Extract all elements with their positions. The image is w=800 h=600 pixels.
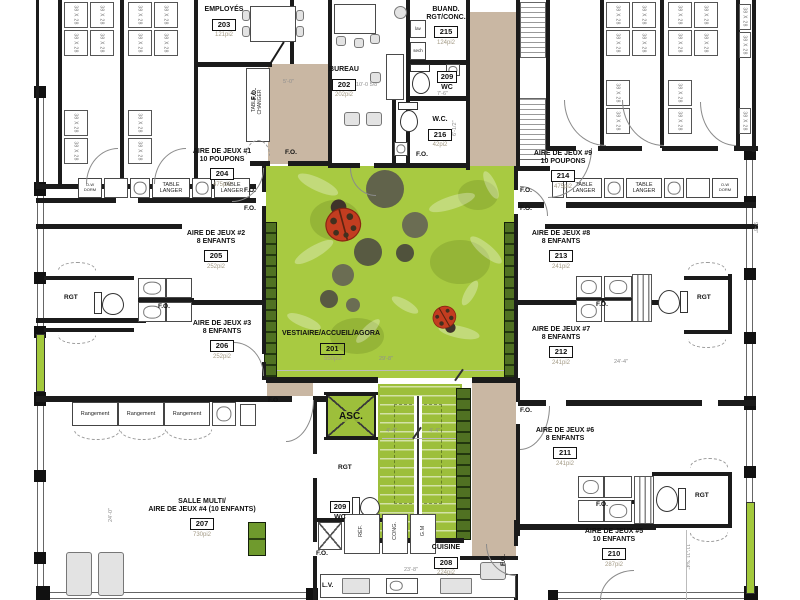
pebble-decoration (354, 238, 382, 266)
room-name: AIRE DE JEUX #8 8 ENFANTS (519, 230, 603, 245)
seat (366, 112, 382, 126)
dimension-text: 9'-8" (752, 222, 758, 233)
room-number: 212 (519, 341, 603, 359)
cabinet (240, 404, 256, 426)
sink (212, 402, 236, 426)
crib-size-label: 38 X 28 (137, 141, 143, 160)
crib: 38 X 28 (128, 110, 152, 136)
fo-annotation: F.O. (244, 205, 256, 212)
crib: 38 X 28 (64, 2, 88, 28)
wall (58, 0, 62, 186)
folding-door (688, 332, 726, 348)
room-label-buanderie: BUAND. RGT/CONC. 215 124pi2 (418, 6, 474, 47)
dimension-text: 4'-4" (429, 428, 440, 434)
counter-appliance (440, 578, 472, 594)
counter (604, 300, 632, 322)
toilet-bowl (656, 486, 678, 512)
wall (516, 378, 520, 402)
fo-annotation: F.O. (500, 554, 507, 566)
wall (545, 224, 758, 229)
room-label-jeux2: AIRE DE JEUX #2 8 ENFANTS 205 252pi2 (174, 230, 258, 271)
counter (604, 476, 632, 498)
fo-annotation: F.O. (251, 88, 258, 100)
crib-size-label: 38 X 28 (73, 33, 79, 52)
dimension-text: 24'-0" (108, 508, 114, 522)
room-name: AIRE DE JEUX #1 10 POUPONS (180, 148, 264, 163)
crib-size-label: 38 X 28 (641, 5, 647, 24)
room-label-jeux1: AIRE DE JEUX #1 10 POUPONS 204 475pi2 (180, 148, 264, 189)
dimension-text: 6'-1/2" (452, 120, 458, 136)
storage-label: RGT (695, 492, 709, 499)
fo-annotation: F.O. (520, 187, 532, 194)
room-area: 202pi2 (316, 92, 372, 99)
room-number-box: 203 (212, 19, 237, 31)
sink-basin (396, 144, 405, 153)
sink-basin (134, 182, 147, 195)
room-area: 124pi2 (418, 40, 474, 47)
wall-pier (744, 466, 756, 478)
room-number: 203 (196, 14, 252, 32)
sink (664, 178, 684, 198)
sink-basin (581, 280, 597, 294)
wall (36, 224, 182, 229)
room-number: 209 (432, 66, 462, 84)
room-label-jeux7: AIRE DE JEUX #7 8 ENFANTS 212 241pi2 (519, 326, 603, 367)
wall (684, 330, 732, 334)
wall (752, 0, 756, 152)
window-band (558, 592, 744, 599)
stove (342, 578, 370, 594)
wall-pier (36, 586, 50, 600)
crib: 38 X 28 (64, 30, 88, 56)
exit-stairs (520, 2, 546, 58)
fo-annotation: F.O. (520, 205, 532, 212)
toilet-tank (410, 64, 430, 72)
room-name: WC (326, 514, 354, 522)
dimension-text: 11'-11 3/4" (684, 544, 690, 569)
fo-annotation: F.O. (416, 151, 428, 158)
crib: 38 X 28 (128, 138, 152, 164)
dimension-text: 29'-8" (379, 356, 393, 362)
toilet-bowl (400, 110, 418, 132)
room-number-box: 208 (434, 557, 459, 569)
crib: 38 X 28 (668, 108, 692, 134)
sink-basin (609, 280, 627, 294)
pebble-decoration (402, 212, 428, 238)
sink (394, 142, 408, 156)
room-label-wc209-bas: 209 WC (326, 496, 354, 521)
room-number-box: 212 (549, 346, 574, 358)
room-area: 252pi2 (174, 264, 258, 271)
sink (578, 476, 604, 498)
wall (36, 318, 146, 323)
dishwasher-label: L.V. (322, 582, 333, 589)
room-number: 208 (416, 552, 476, 570)
refrigerator-label: RÉF. (358, 516, 364, 546)
elevator: ASC. (326, 394, 376, 438)
wall (266, 377, 378, 383)
sink-basin (143, 282, 161, 295)
room-area: 252pi2 (180, 354, 264, 361)
chair (296, 10, 304, 21)
room-number-box: 206 (210, 340, 235, 352)
crib: 38 X 28 (154, 2, 178, 28)
crib-size-label: 38 X 28 (742, 35, 748, 54)
room-label-jeux5: AIRE DE JEUX #5 10 ENFANTS 210 287pi2 (572, 528, 656, 569)
fo-annotation: F.O. (244, 187, 256, 194)
sink-basin (668, 182, 681, 195)
room-area: 42pi2 (422, 142, 458, 149)
room-number: 206 (180, 335, 264, 353)
sink (130, 178, 150, 198)
sink-basin (216, 406, 231, 421)
crib: 38 X 28 (694, 2, 718, 28)
chair (336, 36, 346, 46)
room-name: AIRE DE JEUX #2 8 ENFANTS (174, 230, 258, 245)
wall (374, 163, 470, 168)
room-label-jeux3: AIRE DE JEUX #3 8 ENFANTS 206 252pi2 (180, 320, 264, 361)
wall (186, 300, 264, 305)
room-label-cuisine: CUISINE 208 224pi2 (416, 544, 476, 577)
green-accent-panel (746, 502, 755, 594)
crib: 38 X 28 (739, 32, 751, 58)
crib-size-label: 38 X 28 (677, 5, 683, 24)
corridor (267, 383, 313, 396)
room-number: 209 (326, 496, 354, 514)
room-name: AIRE DE JEUX #6 8 ENFANTS (523, 427, 607, 442)
room-area: 224pi2 (416, 570, 476, 577)
room-name: AIRE DE JEUX #7 8 ENFANTS (519, 326, 603, 341)
equipment-box (318, 522, 342, 550)
wall (728, 472, 732, 528)
fo-annotation: F.O. (268, 397, 280, 404)
storage-label: RGT (64, 294, 78, 301)
dimension-text: 24'-4" (614, 359, 628, 365)
crib: 38 X 28 (632, 30, 656, 56)
room-label-jeux9: AIRE DE JEUX #9 10 POUPONS 214 475pi2 (521, 150, 605, 191)
fo-annotation: F.O. (316, 550, 328, 557)
crib-size-label: 38 X 28 (137, 33, 143, 52)
room-number-box: 202 (332, 79, 357, 91)
chair (370, 34, 380, 44)
wall (662, 146, 718, 151)
crib-size-label: 38 X 28 (615, 111, 621, 130)
crib-size-label: 38 X 28 (742, 7, 748, 26)
room-area: 241pi2 (519, 264, 603, 271)
freezer-label: CONG. (392, 514, 398, 548)
room-name: VESTIAIRE/ACCUEIL/AGORA (282, 330, 398, 338)
room-number: 205 (174, 245, 258, 263)
sink-basin (390, 581, 403, 591)
pebble-decoration (396, 244, 414, 262)
crib: 38 X 28 (694, 30, 718, 56)
sink-basin (583, 480, 599, 494)
room-area: 475pi2 (521, 184, 605, 191)
wall (44, 276, 134, 280)
sink (576, 276, 602, 298)
counter-cabinet: O-W DORM (712, 178, 738, 198)
table (66, 552, 92, 596)
toilet-tank (398, 102, 418, 110)
toilet-tank (680, 291, 688, 313)
wall (566, 202, 756, 208)
room-number-box: 207 (190, 518, 215, 530)
room-number-box: 209 (437, 71, 458, 83)
wall (514, 214, 518, 380)
wall (472, 377, 518, 383)
pebble-decoration (320, 290, 338, 308)
wall-pier (744, 332, 756, 344)
crib-size-label: 38 X 28 (677, 111, 683, 130)
room-number-box: 215 (434, 26, 459, 38)
sink-basin (581, 304, 597, 318)
room-number: 201 (282, 338, 398, 356)
green-accent-panel (36, 334, 45, 392)
sink-basin (608, 182, 621, 195)
room-number-box: 204 (210, 168, 235, 180)
wall (324, 392, 378, 395)
table (98, 552, 124, 596)
room-number-box: 213 (549, 250, 574, 262)
room-number: 213 (519, 245, 603, 263)
door-arc (286, 400, 314, 442)
crib-size-label: 38 X 28 (703, 5, 709, 24)
plant (394, 6, 407, 19)
room-name: BUREAU (316, 66, 372, 74)
wall (313, 478, 317, 542)
cabinet-hatched (632, 274, 652, 322)
crib: 38 X 28 (606, 2, 630, 28)
crib-size-label: 38 X 28 (703, 33, 709, 52)
room-number-box: 201 (320, 343, 345, 355)
wall (120, 0, 124, 186)
wall (36, 0, 39, 188)
wall (514, 520, 518, 546)
crib: 38 X 28 (128, 2, 152, 28)
room-number-box: 216 (428, 129, 453, 141)
room-area: 241pi2 (523, 461, 607, 468)
wall (288, 161, 330, 166)
crib-size-label: 38 X 28 (742, 111, 748, 130)
dimension-text: 10'-0 5/8" (356, 82, 379, 88)
wall (514, 166, 518, 190)
wall-pier (34, 552, 46, 564)
door-arc (600, 570, 634, 600)
crib: 38 X 28 (632, 2, 656, 28)
crib-size-label: 38 X 28 (73, 5, 79, 24)
crib-size-label: 38 X 28 (73, 141, 79, 160)
room-label-jeux6: AIRE DE JEUX #6 8 ENFANTS 211 241pi2 (523, 427, 607, 468)
room-number-box: 210 (602, 548, 627, 560)
wall (516, 0, 520, 168)
storage-cabinet: Rangement (118, 402, 164, 426)
crib: 38 X 28 (739, 108, 751, 134)
sink (386, 578, 418, 594)
cabinet-hatched (634, 476, 654, 524)
wall (546, 0, 550, 150)
wall (36, 198, 116, 203)
room-number-box: 211 (553, 447, 577, 459)
door-leaf (269, 41, 284, 64)
wall-pier (34, 470, 46, 482)
office-table (334, 4, 376, 34)
wall (518, 300, 578, 305)
room-name: AIRE DE JEUX #9 10 POUPONS (521, 150, 605, 165)
dimension-line (382, 438, 460, 439)
room-area: 241pi2 (519, 360, 603, 367)
room-area: 121pi2 (196, 32, 252, 39)
wall-pier (744, 268, 756, 280)
door-arc (86, 148, 118, 184)
wall (566, 400, 702, 406)
fo-annotation: F.O. (285, 149, 297, 156)
room-number: 211 (523, 442, 607, 460)
room-name: SALLE MULTI/ AIRE DE JEUX #4 (10 ENFANTS… (134, 498, 270, 513)
changing-table: TABLE LANGER (626, 178, 662, 198)
room-number-box: 205 (204, 250, 229, 262)
storage-cabinet: Rangement (164, 402, 210, 426)
wall (313, 402, 317, 454)
pebble-decoration (332, 264, 354, 286)
room-label-salle-multi: SALLE MULTI/ AIRE DE JEUX #4 (10 ENFANTS… (134, 498, 270, 539)
crib-size-label: 38 X 28 (677, 33, 683, 52)
room-area: 287pi2 (572, 562, 656, 569)
toilet-bowl (102, 293, 124, 315)
storage-cabinet: Rangement (72, 402, 118, 426)
sink (604, 500, 632, 522)
office-desk (386, 54, 404, 100)
room-name: BUAND. RGT/CONC. (418, 6, 474, 21)
fo-annotation: F.O. (596, 301, 608, 308)
toilet-tank (94, 292, 102, 314)
door-arc (700, 102, 736, 146)
wall (194, 62, 272, 67)
wall (44, 328, 134, 332)
dimension-line (266, 370, 514, 371)
sink (604, 276, 632, 298)
corridor (472, 378, 516, 558)
counter (166, 278, 192, 298)
dimension-text: 7'-6" (437, 91, 448, 97)
crib-size-label: 38 X 28 (615, 83, 621, 102)
crib-size-label: 38 X 28 (163, 5, 169, 24)
room-name: AIRE DE JEUX #3 8 ENFANTS (180, 320, 264, 335)
elevator-label: ASC. (337, 411, 365, 422)
crib: 38 X 28 (668, 30, 692, 56)
crib: 38 X 28 (154, 30, 178, 56)
crib: 38 X 28 (90, 2, 114, 28)
crib-size-label: 38 X 28 (99, 5, 105, 24)
wall (652, 472, 732, 476)
crib: 38 X 28 (64, 138, 88, 164)
room-name: CUISINE (416, 544, 476, 552)
dimension-text: 23'-8" (404, 567, 418, 573)
wall (324, 437, 378, 440)
counter (686, 178, 710, 198)
dimension-text: 4'-4" (386, 428, 397, 434)
wall (652, 524, 732, 528)
sink (138, 278, 166, 298)
room-label-wc209-haut: 209 WC (432, 66, 462, 91)
room-name: EMPLOYÉS (196, 6, 252, 14)
dimension-text: 5'-0" (283, 79, 294, 85)
toilet-bowl (412, 72, 430, 94)
dimension-line (686, 530, 687, 600)
appliance-gm-label: G.M (420, 518, 426, 544)
crib: 38 X 28 (668, 2, 692, 28)
room-number-box: 209 (330, 501, 351, 513)
crib: 38 X 28 (739, 4, 751, 30)
crib-size-label: 38 X 28 (615, 33, 621, 52)
chair (354, 38, 364, 48)
fo-annotation: F.O. (520, 407, 532, 414)
storage-label: RGT (697, 294, 711, 301)
room-area: 730pi2 (134, 532, 270, 539)
wall (734, 146, 758, 151)
fo-annotation: F.O. (158, 303, 170, 310)
crib: 38 X 28 (90, 30, 114, 56)
door-arc (564, 100, 606, 146)
crib: 38 X 28 (606, 30, 630, 56)
crib: 38 X 28 (128, 30, 152, 56)
locker-strip (456, 388, 471, 540)
crib-size-label: 38 X 28 (73, 113, 79, 132)
crib-size-label: 38 X 28 (99, 33, 105, 52)
wall (313, 556, 317, 600)
room-name: AIRE DE JEUX #5 10 ENFANTS (572, 528, 656, 543)
stair-rail (417, 396, 419, 528)
corridor (470, 12, 516, 168)
seat (344, 112, 360, 126)
chair (296, 26, 304, 37)
room-label-employes: EMPLOYÉS 203 121pi2 (196, 6, 252, 39)
room-number-box: 214 (551, 170, 576, 182)
storage-label: RGT (338, 464, 352, 471)
crib-size-label: 38 X 28 (641, 33, 647, 52)
crib-size-label: 38 X 28 (137, 5, 143, 24)
changing-table-label: TABLE À CHANGER (252, 70, 263, 134)
room-label-jeux8: AIRE DE JEUX #8 8 ENFANTS 213 241pi2 (519, 230, 603, 271)
sink (604, 178, 624, 198)
crib-size-label: 38 X 28 (137, 113, 143, 132)
floor-plan: ASC. 38 X 28 38 X 28 38 X 28 38 X 28 38 … (0, 0, 800, 600)
room-number: 215 (418, 21, 474, 39)
door-arc (622, 100, 664, 146)
wall-pier (548, 590, 558, 600)
sink-basin (609, 504, 627, 518)
fo-annotation: F.O. (596, 501, 608, 508)
room-number: 207 (134, 513, 270, 531)
crib: 38 X 28 (64, 110, 88, 136)
crib: 38 X 28 (668, 80, 692, 106)
crib-size-label: 38 X 28 (163, 33, 169, 52)
toilet-tank (678, 488, 686, 510)
toilet-bowl (658, 290, 680, 314)
wall (684, 276, 732, 280)
wall (718, 400, 756, 406)
wall (728, 274, 732, 334)
room-number: 204 (180, 163, 264, 181)
crib-size-label: 38 X 28 (615, 5, 621, 24)
pebble-decoration (346, 298, 360, 312)
room-number: 214 (521, 165, 605, 183)
staff-table (250, 6, 296, 42)
room-number: 210 (572, 543, 656, 561)
crib-size-label: 38 X 28 (677, 83, 683, 102)
